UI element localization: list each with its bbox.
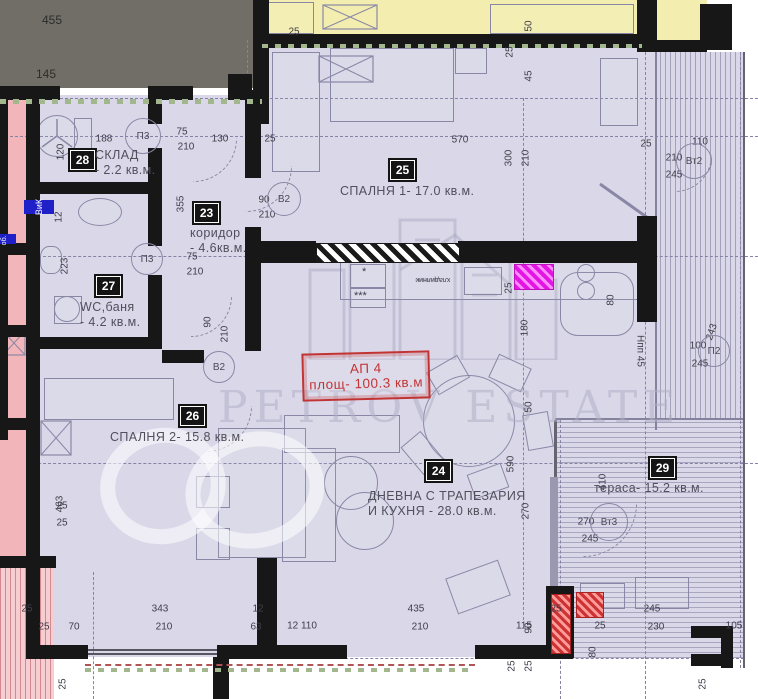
room-label: WC,баня- 4.2 кв.м. (80, 300, 141, 330)
dimension-label: 210 (521, 150, 532, 167)
room-badge-23: 23 (194, 203, 219, 223)
axis-line-v (740, 52, 741, 668)
room-name: СПАЛНЯ 2- 15.8 кв.м. (110, 430, 244, 445)
wall (162, 350, 204, 363)
dimension-label: 25 (288, 27, 299, 38)
dimension-label: 25 (504, 282, 515, 293)
dimension-label: 230 (648, 622, 665, 633)
dimension-label: 25 (56, 501, 67, 512)
room-badge-27: 27 (96, 276, 121, 296)
dimension-label: 210 (156, 622, 173, 633)
plumbing-badge: ВиК (24, 200, 54, 214)
dimension-label: 210 (220, 326, 231, 343)
dimension-label: 70 (68, 622, 79, 633)
window-line (88, 649, 217, 651)
wall-section-hatch (316, 243, 460, 263)
room-badge-26: 26 (180, 406, 205, 426)
room-name: ДНЕВНА С ТРАПЕЗАРИЯ (368, 489, 526, 504)
furniture-outline (350, 264, 386, 288)
dimension-label: 180 (520, 320, 531, 337)
room-name: WC,баня (80, 300, 141, 315)
room-badge-29: 29 (650, 458, 675, 478)
dimension-label: 80 (588, 646, 599, 657)
wall (700, 4, 732, 50)
room-name: СКЛАД (95, 148, 156, 163)
furniture-outline (272, 52, 320, 172)
room-area: - 4.2 кв.м. (80, 315, 141, 330)
sink-oval (78, 198, 122, 226)
door-mark-П2: П2 (698, 335, 730, 367)
apartment-id: АП 4 (350, 361, 382, 377)
wall (691, 654, 733, 666)
watermark-text: PETROV ESTATE (218, 382, 681, 433)
vent-shaft-magenta (514, 264, 554, 290)
wall (26, 645, 88, 659)
dimension-label: 25 (698, 678, 709, 689)
dimension-label: 25 (594, 621, 605, 632)
wall (0, 418, 28, 430)
window-line (88, 653, 217, 655)
dimension-label: 90 (203, 316, 214, 327)
wall (250, 241, 316, 263)
dimension-label: 435 (408, 604, 425, 615)
wall (0, 325, 28, 337)
dimension-label: 120 (56, 144, 67, 161)
apartment-area-box: АП 4 площ- 100.3 кв.м (301, 350, 430, 401)
dimension-label: 210 (412, 622, 429, 633)
furniture-circle (577, 282, 595, 300)
dimension-label: 590 (506, 456, 517, 473)
wall (26, 95, 40, 657)
dimension-label: 105 (726, 621, 743, 632)
dimension-label: 25 (505, 46, 516, 57)
plumbing-badge: ВиК об. (0, 234, 16, 244)
room-name: коридор (190, 226, 247, 241)
wall (245, 273, 261, 351)
window-line (743, 52, 745, 668)
terrace-upper-hatch (655, 52, 745, 430)
wall (0, 95, 8, 440)
furniture-circle (54, 296, 80, 322)
dimension-label: 455 (42, 13, 62, 27)
furniture-outline (560, 272, 634, 336)
door-mark-Вт2: Вт2 (676, 143, 712, 179)
dimension-label: 25 (21, 604, 32, 615)
survey-tick-band (85, 668, 475, 672)
door-mark-П3: П3 (131, 243, 163, 275)
wall (637, 216, 657, 322)
wall (458, 241, 657, 263)
dimension-label: 45 (524, 70, 535, 81)
wardrobe-x-box (318, 55, 374, 83)
axis-line-v (93, 572, 94, 699)
room-area: - 2.2 кв.м. (95, 163, 156, 178)
furniture-outline (455, 48, 487, 74)
wall (148, 194, 162, 246)
vent-shaft-red (576, 592, 604, 618)
furniture-outline (464, 267, 502, 295)
dimension-label: 50 (524, 20, 535, 31)
dimension-label: Нпп 45 (635, 335, 646, 367)
dimension-label: 145 (36, 67, 56, 81)
dimension-label: 25 (524, 660, 535, 671)
dimension-label: 80 (606, 294, 617, 305)
dimension-label: 223 (60, 258, 71, 275)
survey-tick-band (0, 99, 262, 104)
room-badge-28: 28 (70, 150, 95, 170)
dimension-label: 245 (644, 604, 661, 615)
wardrobe-x-box (322, 4, 378, 30)
survey-tick-band (262, 44, 642, 48)
dimension-label: 25 (507, 660, 518, 671)
balcony-dashed-line (85, 664, 475, 666)
furniture-outline (490, 4, 634, 34)
dimension-label: 63 (250, 622, 261, 633)
wall (217, 645, 347, 659)
dimension-label: 12 (54, 211, 65, 222)
room-name: тераса- 15.2 кв.м. (594, 481, 704, 496)
room-area: - 4.6кв.м. (190, 241, 247, 256)
wall (40, 182, 160, 194)
furniture-circle (577, 264, 595, 282)
dimension-label: 12 (252, 604, 263, 615)
wall (148, 275, 162, 339)
freezer-stars-icon: *** (354, 290, 367, 302)
dimension-label: 25 (56, 518, 67, 529)
room-label: СПАЛНЯ 1- 17.0 кв.м. (340, 184, 474, 199)
door-mark-Вт3: Вт3 (590, 503, 628, 541)
wall (637, 40, 707, 52)
freezer-stars-icon: * (362, 266, 366, 278)
dimension-label: 210 (187, 267, 204, 278)
furniture-outline (44, 378, 174, 420)
dimension-label: 25 (264, 134, 275, 145)
room-area: И КУХНЯ - 28.0 кв.м. (368, 504, 526, 519)
door-mark-В2: В2 (203, 351, 235, 383)
room-badge-25: 25 (390, 160, 415, 180)
fridge-label: хладилник (416, 276, 450, 283)
room-badge-24: 24 (426, 461, 451, 481)
wardrobe-x-box (40, 420, 72, 456)
dimension-label: 570 (452, 135, 469, 146)
furniture-outline (600, 58, 638, 126)
dimension-label: 12 110 (287, 621, 317, 632)
dimension-label: 25 (38, 622, 49, 633)
dimension-label: 188 (96, 134, 113, 145)
room-label: ДНЕВНА С ТРАПЕЗАРИЯИ КУХНЯ - 28.0 кв.м. (368, 489, 526, 519)
dimension-label: 25 (550, 604, 561, 615)
room-label: тераса- 15.2 кв.м. (594, 481, 704, 496)
dimension-label: 210 (178, 142, 195, 153)
dimension-label: 75 (176, 127, 187, 138)
room-name: СПАЛНЯ 1- 17.0 кв.м. (340, 184, 474, 199)
dimension-label: 25 (58, 678, 69, 689)
dimension-label: 25 (640, 139, 651, 150)
room-label: коридор- 4.6кв.м. (190, 226, 247, 256)
wall (26, 337, 162, 349)
dimension-label: 130 (212, 134, 229, 145)
room-label: СПАЛНЯ 2- 15.8 кв.м. (110, 430, 244, 445)
dimension-label: 300 (504, 150, 515, 167)
dimension-label: 90 (524, 622, 535, 633)
dimension-label: 343 (152, 604, 169, 615)
dimension-label: 355 (176, 196, 187, 213)
floor-plan: PETROV ESTATE АП 4 площ- 100.3 кв.м 4551… (0, 0, 758, 699)
room-label: СКЛАД- 2.2 кв.м. (95, 148, 156, 178)
dimension-label: 50 (524, 401, 535, 412)
apartment-area: площ- 100.3 кв.м (309, 375, 423, 393)
door-mark-В2: В2 (267, 182, 301, 216)
